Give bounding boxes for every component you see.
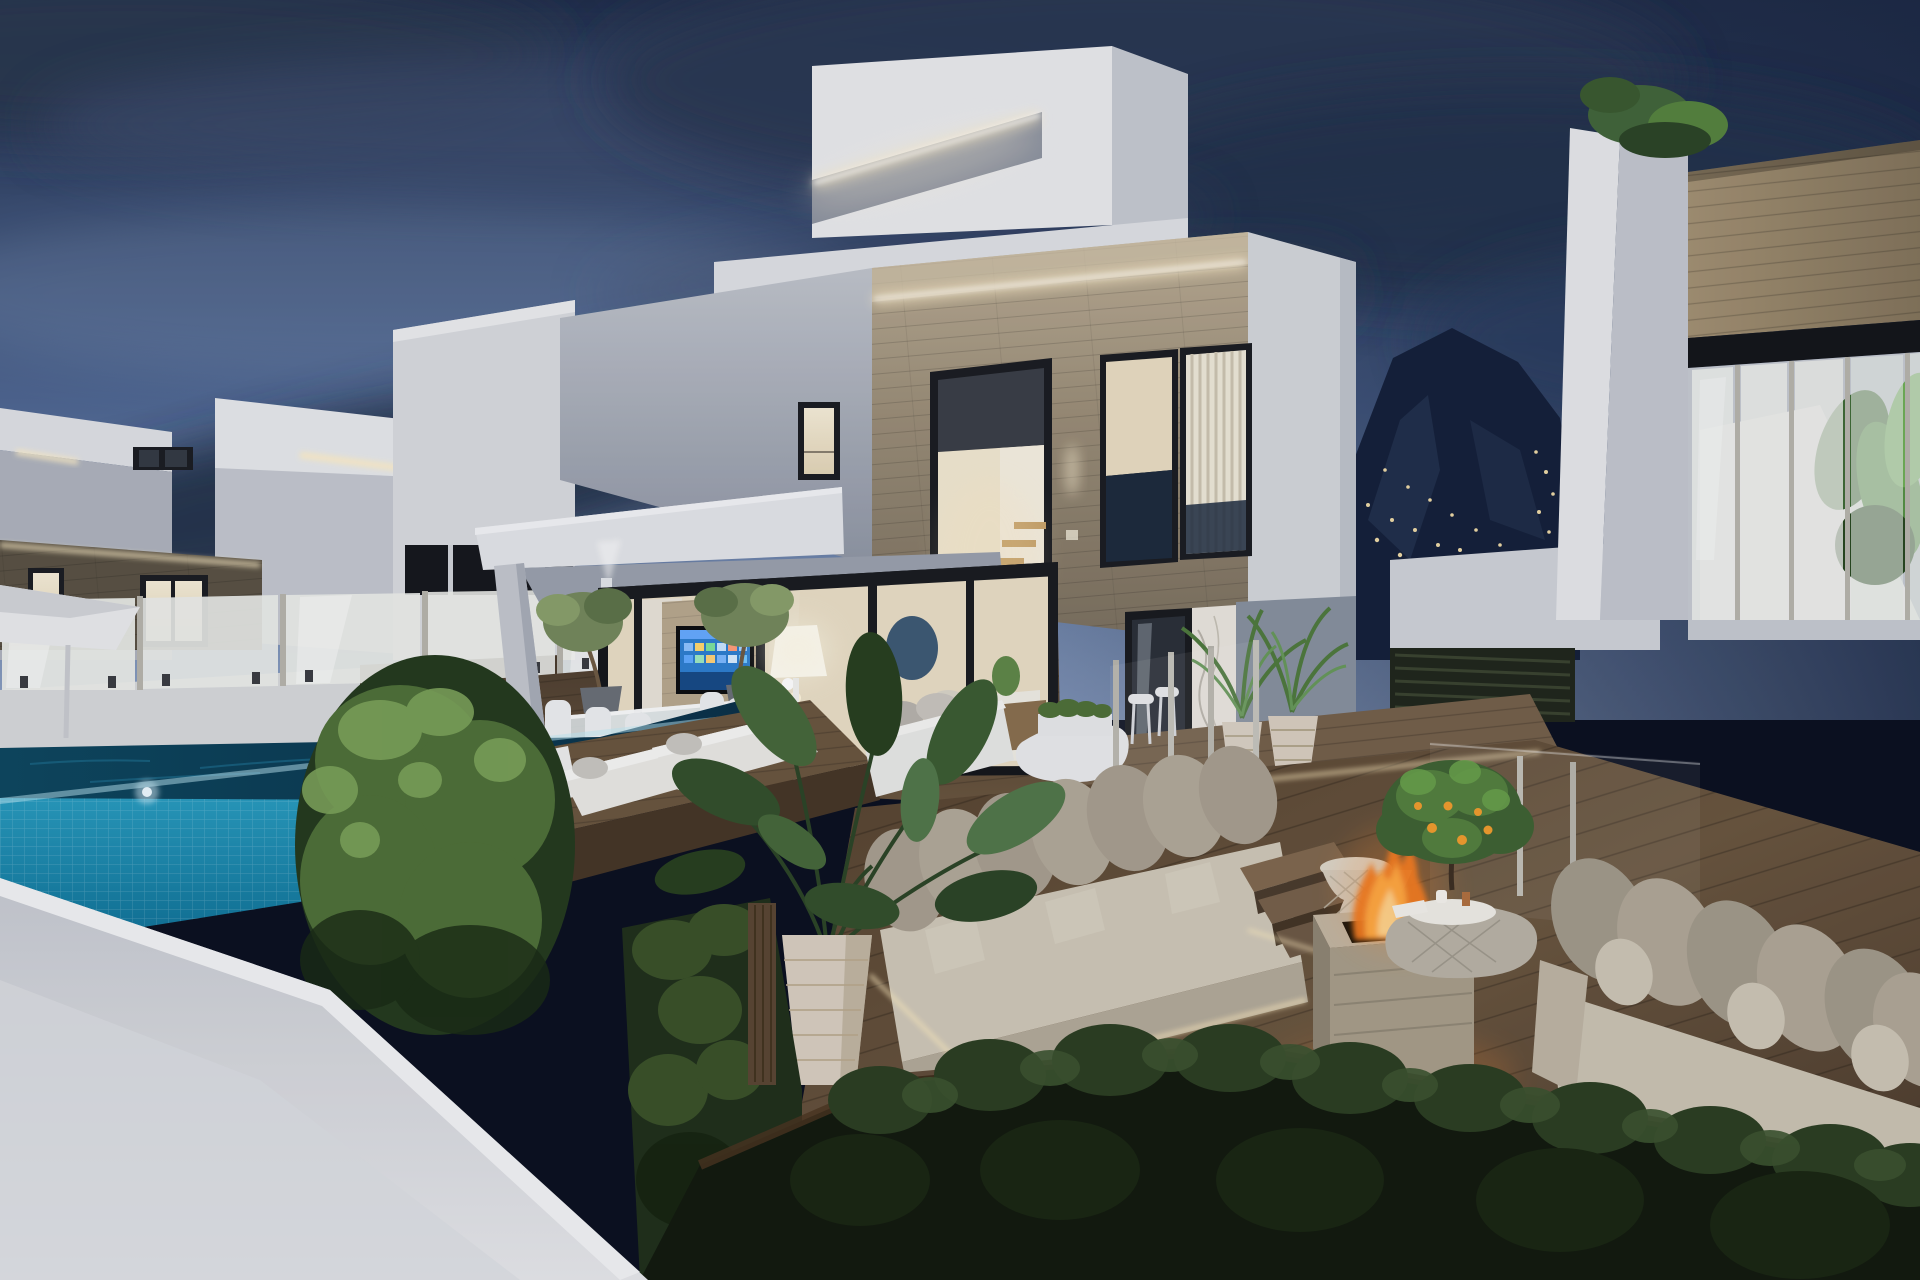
rendering-viewport: [0, 0, 1920, 1280]
vignette: [0, 0, 1920, 1280]
